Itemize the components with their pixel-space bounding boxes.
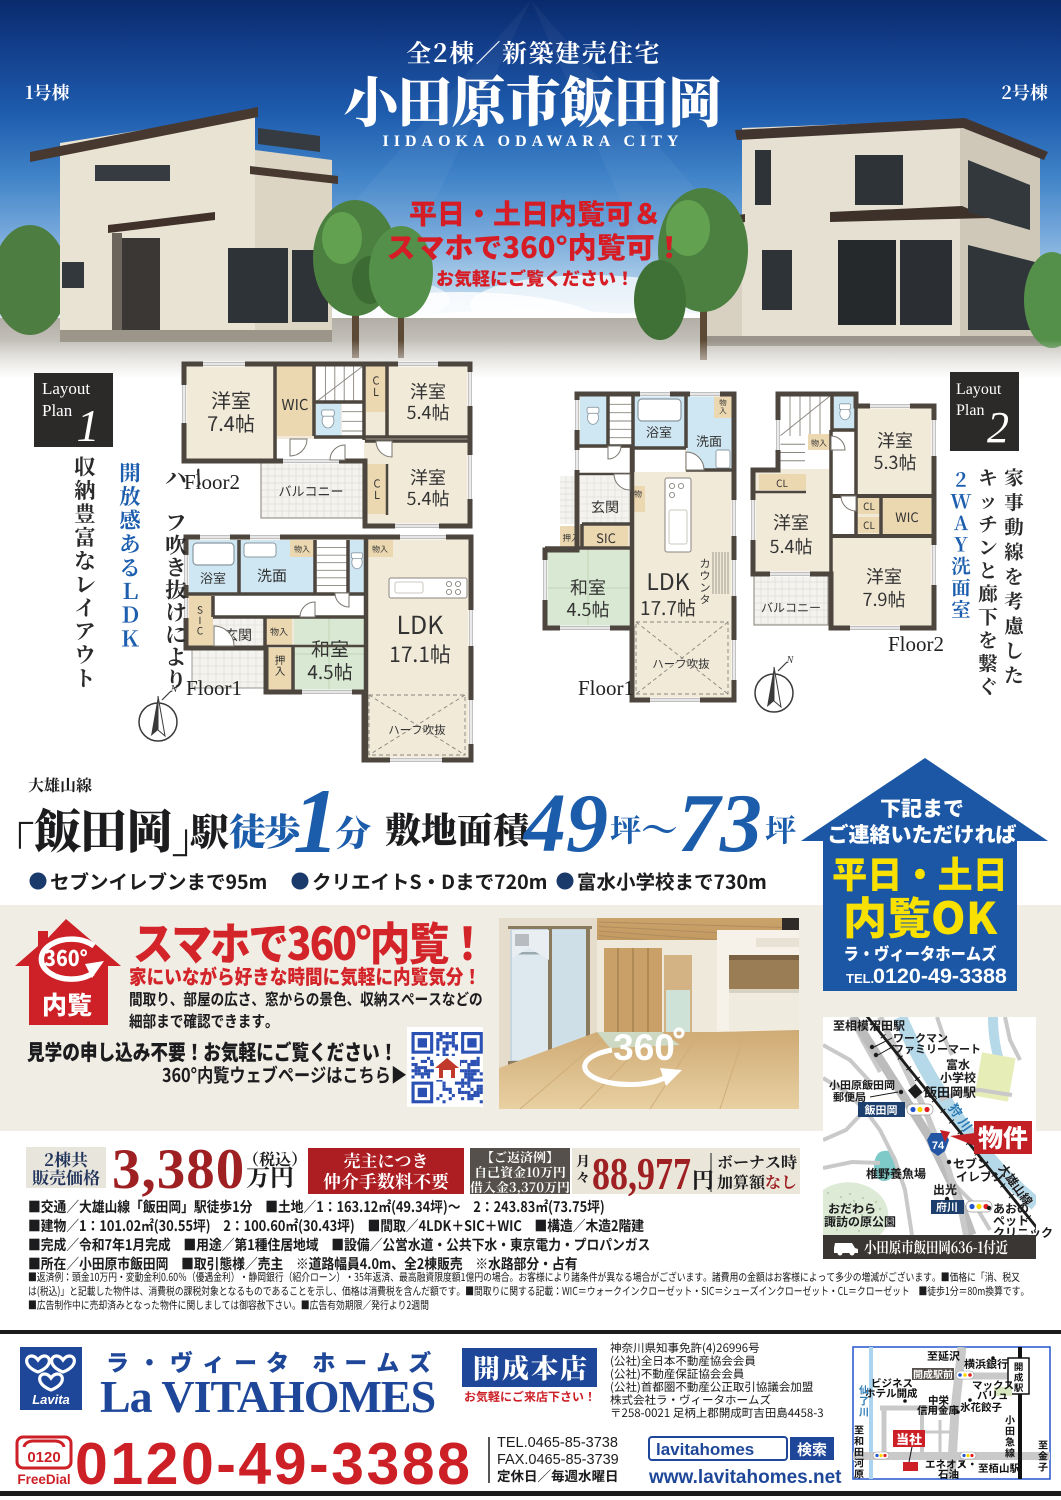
svg-text:Layout: Layout [42, 379, 90, 398]
svg-text:0120-49-3388: 0120-49-3388 [873, 964, 1007, 988]
svg-text:Floor2: Floor2 [888, 632, 944, 656]
svg-text:Plan: Plan [42, 401, 73, 420]
svg-text:Floor2: Floor2 [184, 470, 240, 494]
svg-text:TEL.: TEL. [846, 971, 874, 986]
svg-text:0120: 0120 [27, 1449, 60, 1466]
svg-text:2: 2 [987, 403, 1009, 452]
svg-text:73: 73 [678, 777, 762, 870]
svg-text:La VITAHOMES: La VITAHOMES [100, 1371, 435, 1422]
svg-text:74: 74 [932, 1140, 945, 1152]
svg-text:www.lavitahomes.net: www.lavitahomes.net [648, 1467, 842, 1488]
svg-text:FAX.0465-85-3739: FAX.0465-85-3739 [497, 1452, 619, 1468]
svg-text:FreeDial: FreeDial [17, 1472, 70, 1487]
svg-text:IIDAOKA ODAWARA CITY: IIDAOKA ODAWARA CITY [383, 133, 684, 150]
svg-text:lavitahomes: lavitahomes [656, 1440, 754, 1459]
svg-text:360: 360 [613, 1027, 675, 1068]
svg-text:1: 1 [77, 400, 100, 451]
svg-text:Floor1: Floor1 [186, 676, 242, 700]
svg-text:Floor1: Floor1 [578, 676, 634, 700]
svg-text:49: 49 [522, 777, 608, 870]
svg-text:Layout: Layout [956, 381, 1002, 398]
svg-text:3,380: 3,380 [112, 1138, 245, 1201]
svg-text:88,977: 88,977 [592, 1148, 691, 1199]
svg-text:TEL.0465-85-3738: TEL.0465-85-3738 [497, 1435, 618, 1451]
svg-text:0120-49-3388: 0120-49-3388 [75, 1431, 472, 1497]
svg-text:Plan: Plan [956, 402, 984, 419]
svg-text:Lavita: Lavita [32, 1392, 70, 1407]
svg-text:1: 1 [293, 770, 339, 872]
svg-text:N: N [786, 655, 795, 666]
